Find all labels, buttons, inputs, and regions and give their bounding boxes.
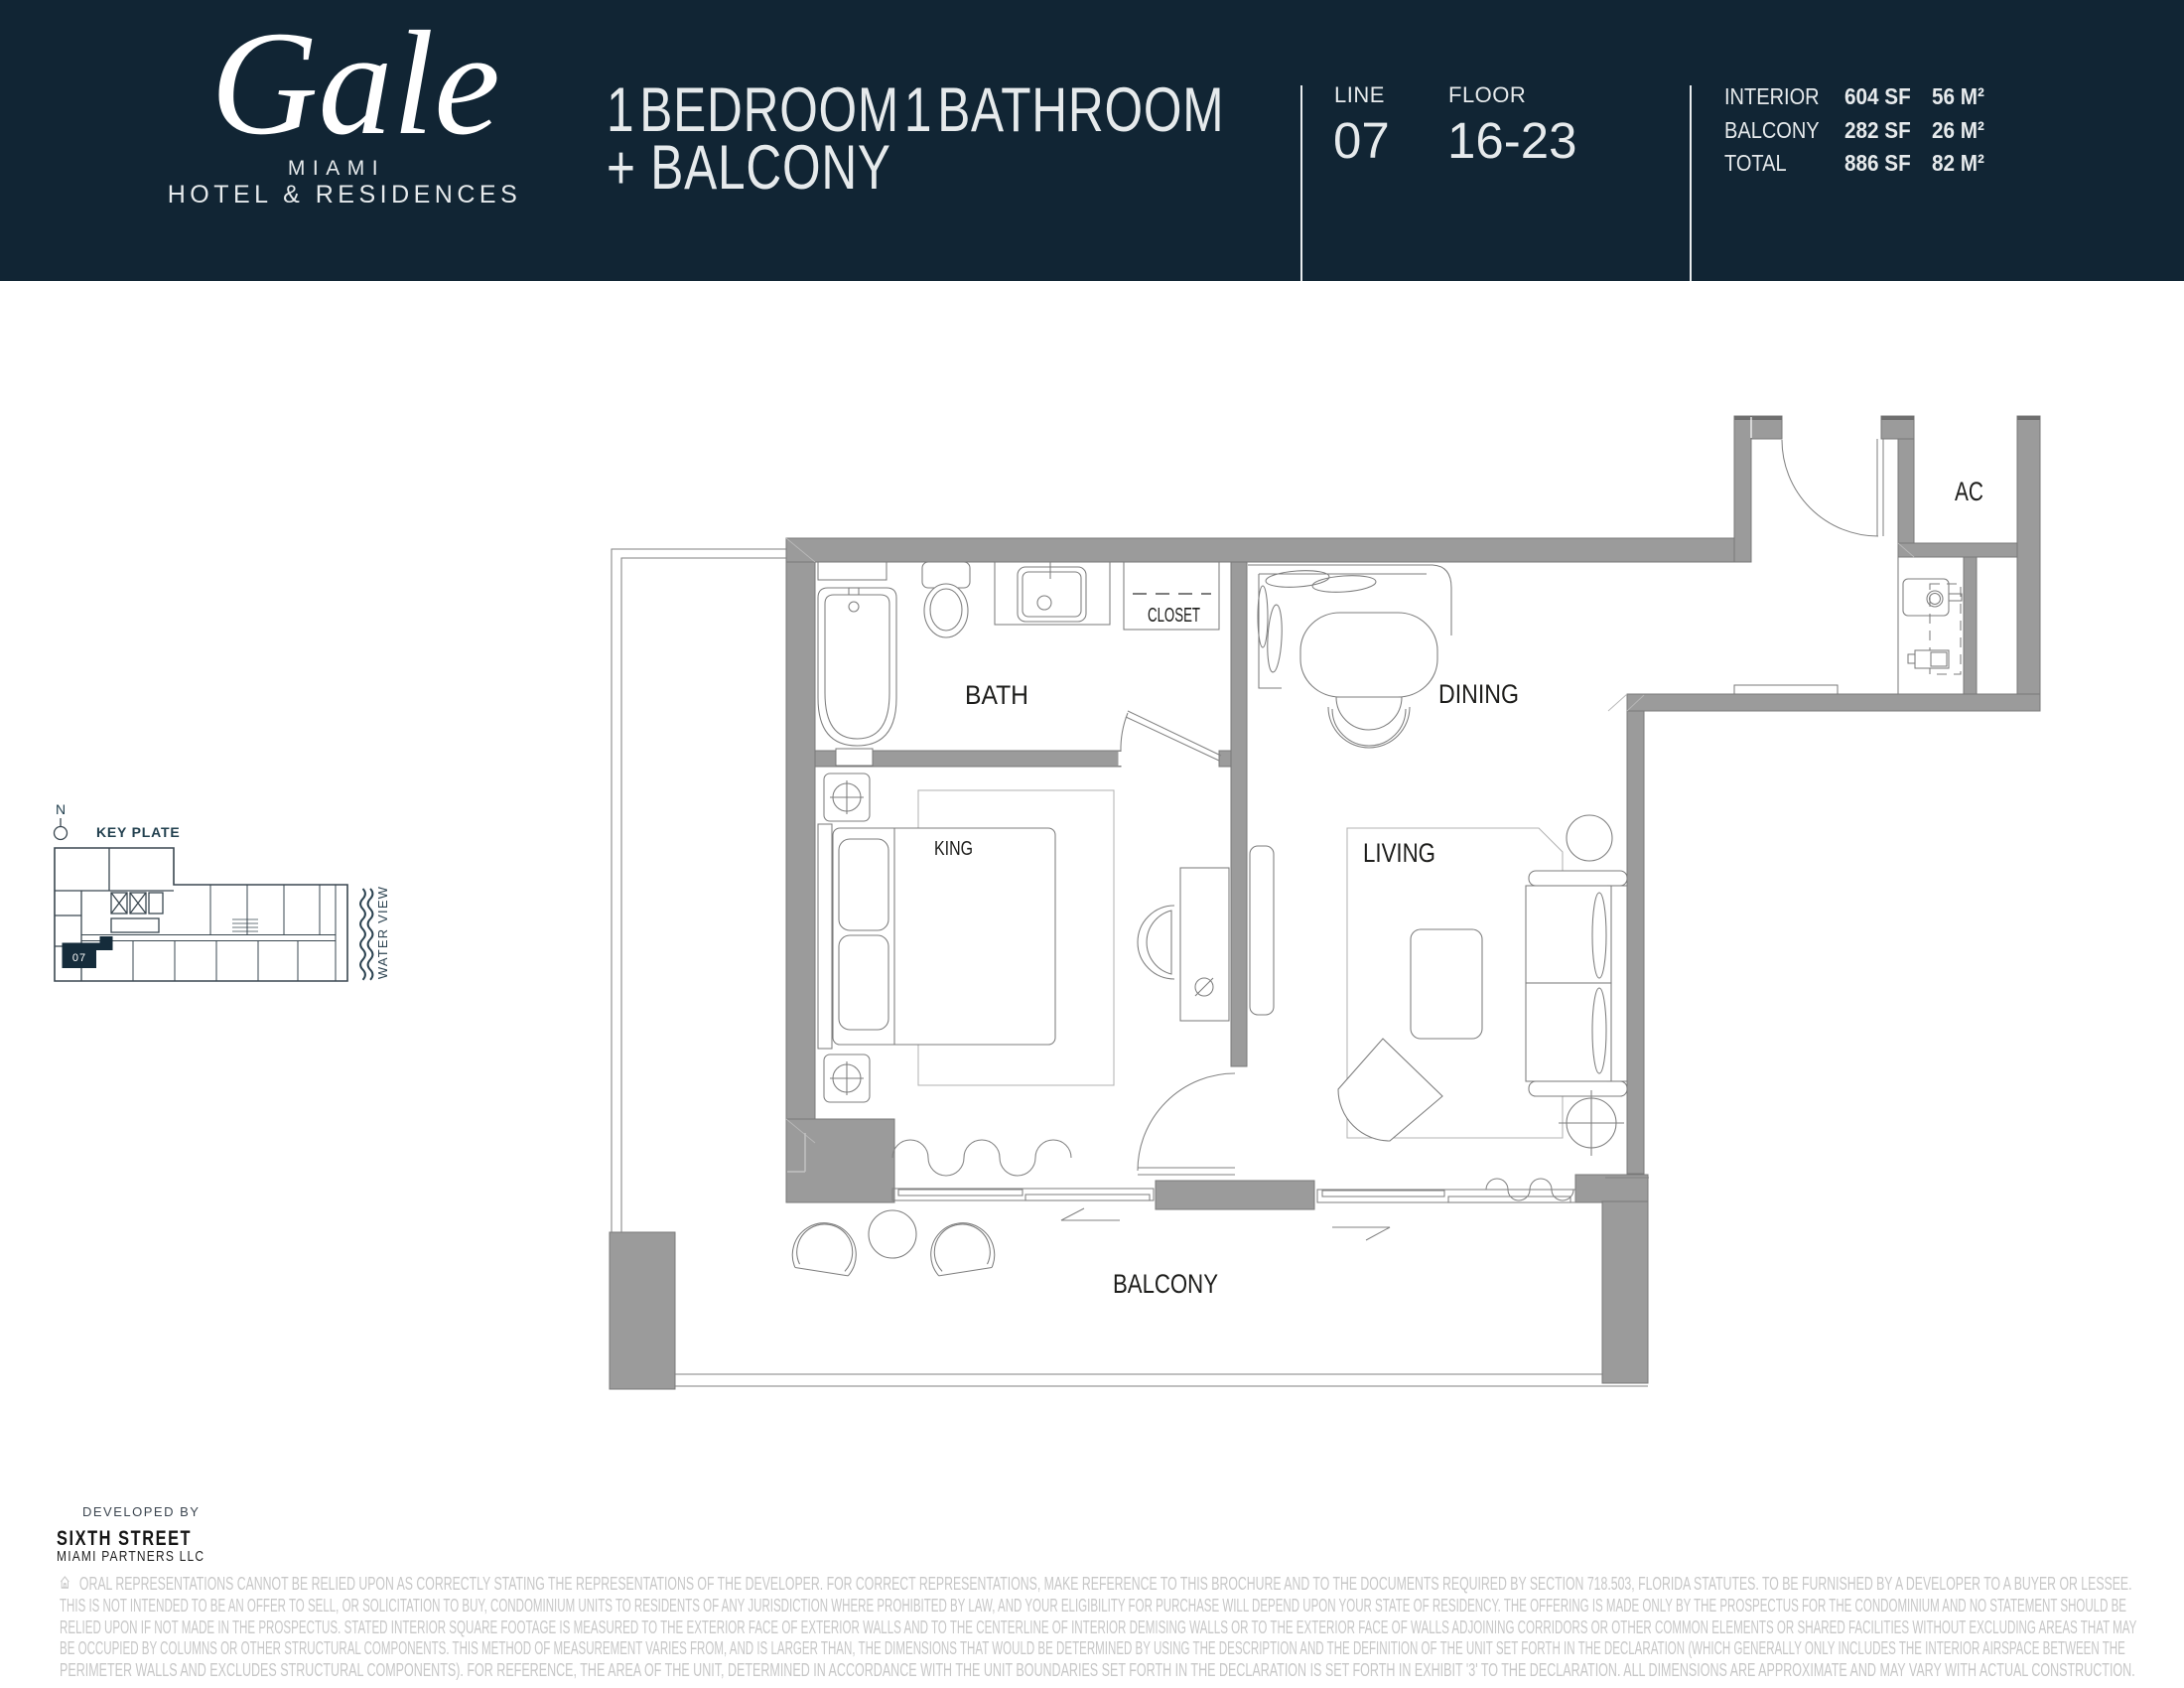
svg-text:07: 07 [72, 952, 86, 964]
svg-text:KING: KING [934, 838, 973, 860]
svg-text:BALCONY: BALCONY [1113, 1269, 1218, 1299]
svg-text:KEY PLATE: KEY PLATE [96, 824, 180, 840]
svg-text:BATH: BATH [965, 680, 1028, 710]
svg-text:N: N [56, 801, 66, 817]
svg-text:AC: AC [1955, 477, 1983, 506]
svg-text:DINING: DINING [1438, 679, 1519, 709]
svg-text:LIVING: LIVING [1363, 838, 1435, 868]
svg-text:CLOSET: CLOSET [1148, 605, 1200, 627]
svg-text:WATER VIEW: WATER VIEW [375, 886, 390, 979]
